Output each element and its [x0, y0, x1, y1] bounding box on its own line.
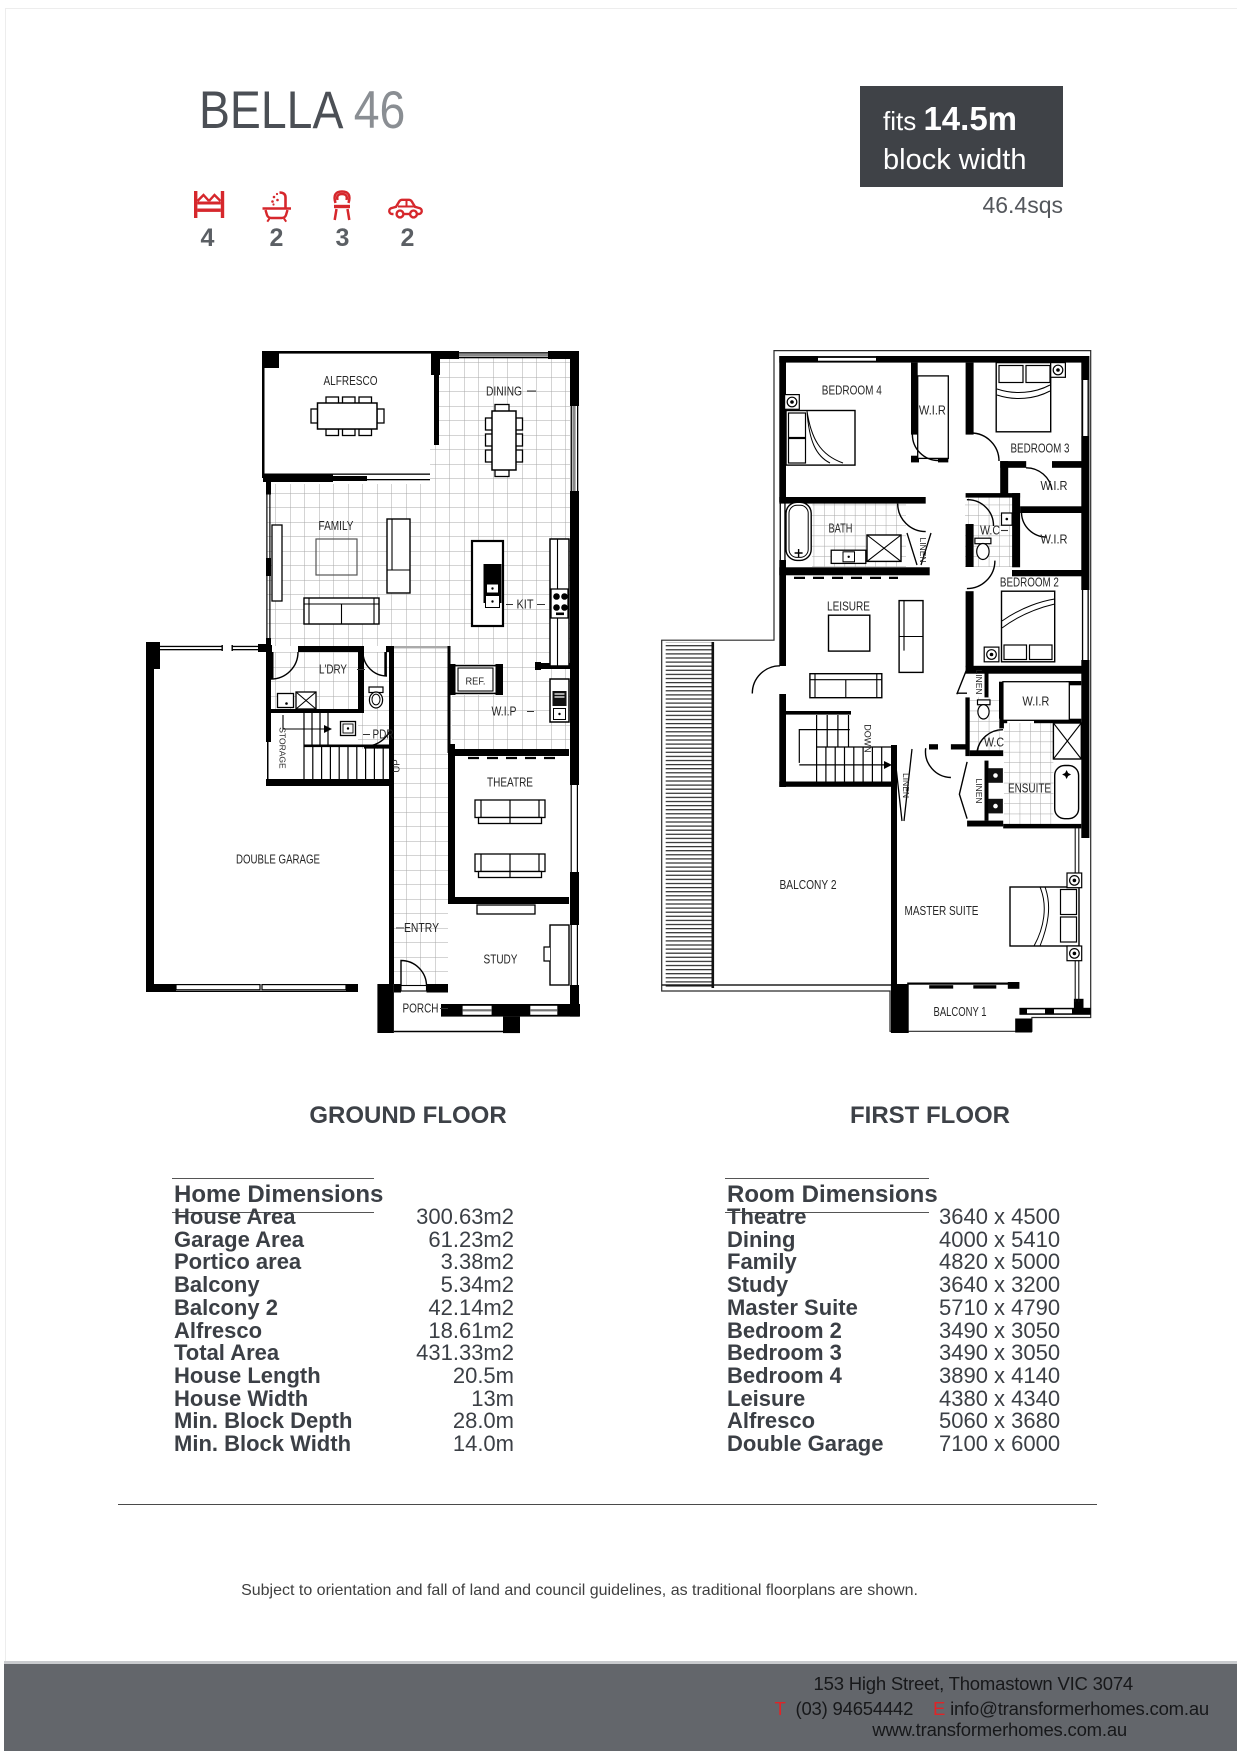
svg-text:KIT: KIT [517, 597, 534, 612]
svg-text:UP: UP [392, 759, 403, 772]
svg-text:BEDROOM 4: BEDROOM 4 [822, 383, 882, 398]
svg-text:DOWN: DOWN [863, 724, 873, 753]
svg-text:LEISURE: LEISURE [827, 599, 870, 614]
svg-text:ENTRY: ENTRY [404, 920, 439, 935]
svg-text:W.I.R: W.I.R [919, 403, 946, 418]
svg-text:BALCONY 1: BALCONY 1 [934, 1004, 987, 1019]
svg-text:W.C: W.C [984, 735, 1004, 750]
svg-text:W.I.R: W.I.R [1041, 532, 1068, 547]
svg-text:BEDROOM 3: BEDROOM 3 [1011, 441, 1070, 456]
svg-text:STORAGE: STORAGE [278, 727, 288, 769]
svg-text:MASTER SUITE: MASTER SUITE [905, 903, 979, 918]
svg-text:BEDROOM 2: BEDROOM 2 [1000, 575, 1059, 590]
svg-text:LINEN: LINEN [974, 669, 984, 694]
svg-text:BATH: BATH [829, 521, 853, 536]
svg-text:W.I.P: W.I.P [492, 704, 517, 719]
svg-text:LINEN: LINEN [901, 773, 911, 798]
svg-text:W.I.R: W.I.R [1022, 694, 1049, 709]
svg-text:DOUBLE GARAGE: DOUBLE GARAGE [236, 852, 320, 867]
svg-text:LINEN: LINEN [918, 537, 928, 562]
svg-text:L'DRY: L'DRY [319, 662, 347, 677]
svg-text:W.I.R: W.I.R [1041, 478, 1068, 493]
svg-text:W.C: W.C [980, 523, 1000, 538]
svg-text:PORCH: PORCH [403, 1001, 439, 1016]
svg-text:PDR: PDR [373, 727, 394, 742]
svg-text:LINEN: LINEN [974, 778, 984, 803]
svg-text:DINING: DINING [486, 384, 522, 399]
svg-text:FAMILY: FAMILY [319, 518, 354, 533]
svg-text:THEATRE: THEATRE [487, 775, 533, 790]
svg-text:REF.: REF. [466, 677, 486, 688]
svg-text:ENSUITE: ENSUITE [1008, 781, 1051, 796]
svg-text:STUDY: STUDY [484, 952, 518, 967]
svg-text:BALCONY 2: BALCONY 2 [780, 877, 837, 892]
svg-text:ALFRESCO: ALFRESCO [324, 373, 378, 388]
